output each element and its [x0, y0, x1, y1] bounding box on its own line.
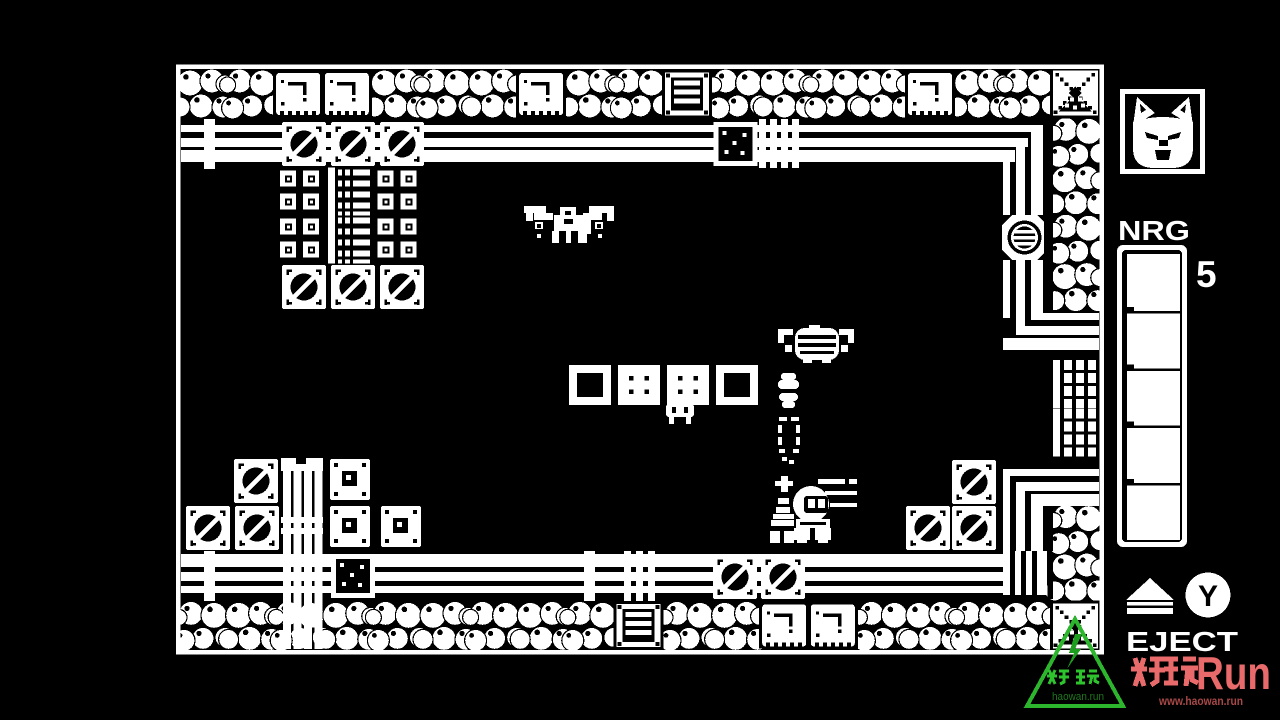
svg-text:Y: Y	[1198, 580, 1218, 613]
svg-text:Run: Run	[1196, 647, 1271, 699]
svg-text:haowan.run: haowan.run	[1052, 691, 1104, 703]
svg-text:www.haowan.run: www.haowan.run	[1158, 694, 1243, 708]
svg-text:NRG: NRG	[1118, 215, 1190, 246]
svg-text:5: 5	[1196, 254, 1217, 295]
